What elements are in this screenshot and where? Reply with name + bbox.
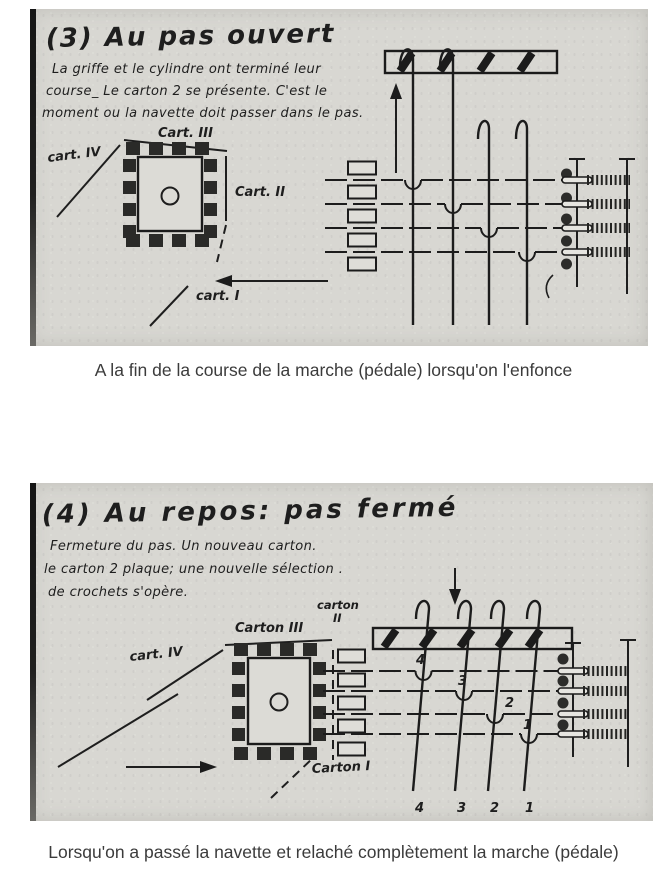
hook-number-4: 4 <box>415 653 425 668</box>
spring-box <box>558 640 637 767</box>
figure-pas-ferme: (4) Au repos: pas fermé Fermeture du pas… <box>30 483 653 821</box>
griffe-bar <box>373 628 572 649</box>
label-cart-2: Cart. II <box>235 185 285 200</box>
label-carton-2-num: II <box>333 611 342 625</box>
label-cart-1: cart. I <box>196 289 240 304</box>
hook-1 <box>524 601 540 791</box>
label-cart-4: cart. IV <box>129 644 185 665</box>
hook-number-3: 3 <box>458 674 467 689</box>
label-carton-3: Carton III <box>235 621 303 636</box>
tail-number-1: 1 <box>525 801 534 816</box>
cylinder <box>232 643 326 760</box>
panel4-text-line3: de crochets s'opère. <box>48 585 188 600</box>
panel4-text-line2: le carton 2 plaque; une nouvelle sélecti… <box>44 562 343 577</box>
hook-number-2: 2 <box>505 696 514 711</box>
tail-number-4: 4 <box>414 801 424 816</box>
stray-mark <box>546 275 553 298</box>
label-cart-4: cart. IV <box>47 144 103 166</box>
caption-pas-ouvert: A la fin de la course de la marche (péda… <box>0 360 667 381</box>
arrow-right <box>126 761 217 773</box>
card-4-pointer-long <box>58 694 178 767</box>
hook-2 <box>488 601 504 791</box>
hook-4 <box>413 601 429 791</box>
arrow-down <box>449 568 461 605</box>
arrow-up <box>390 83 402 173</box>
panel4-title: (4) Au repos: pas fermé <box>42 493 459 530</box>
hook-1 <box>400 49 413 325</box>
needle-end-boxes <box>348 162 376 271</box>
panel3-title: (3) Au pas ouvert <box>46 19 336 54</box>
tail-number-3: 3 <box>457 801 466 816</box>
hook-number-1: 1 <box>523 718 532 733</box>
panel3-text-line2: course_ Le carton 2 se présente. C'est l… <box>46 84 327 99</box>
cylinder <box>123 142 217 247</box>
griffe-bar <box>385 51 557 73</box>
label-carton-1: Carton I <box>311 759 370 777</box>
needle-end-boxes <box>338 650 365 756</box>
tail-number-2: 2 <box>490 801 499 816</box>
card-1-pointer <box>150 286 188 326</box>
diagram-pas-ouvert: (3) Au pas ouvert La griffe et le cylind… <box>30 9 648 346</box>
card-2-dashed <box>217 225 226 262</box>
hook-3 <box>478 121 489 325</box>
panel3-text-line3: moment ou la navette doit passer dans le… <box>42 106 364 121</box>
card-1-dashed-pointer <box>271 756 315 798</box>
label-cart-3: Cart. III <box>158 126 213 141</box>
panel3-text-line1: La griffe et le cylindre ont terminé leu… <box>52 62 322 77</box>
hook-2 <box>440 49 453 325</box>
arrow-left <box>215 275 328 287</box>
diagram-pas-ferme: (4) Au repos: pas fermé Fermeture du pas… <box>30 483 653 821</box>
hook-4 <box>516 121 527 325</box>
caption-pas-ferme: Lorsqu'on a passé la navette et relaché … <box>0 842 667 863</box>
label-carton-2-word: carton <box>317 598 359 612</box>
panel4-text-line1: Fermeture du pas. Un nouveau carton. <box>50 539 317 554</box>
figure-pas-ouvert: (3) Au pas ouvert La griffe et le cylind… <box>30 9 648 346</box>
